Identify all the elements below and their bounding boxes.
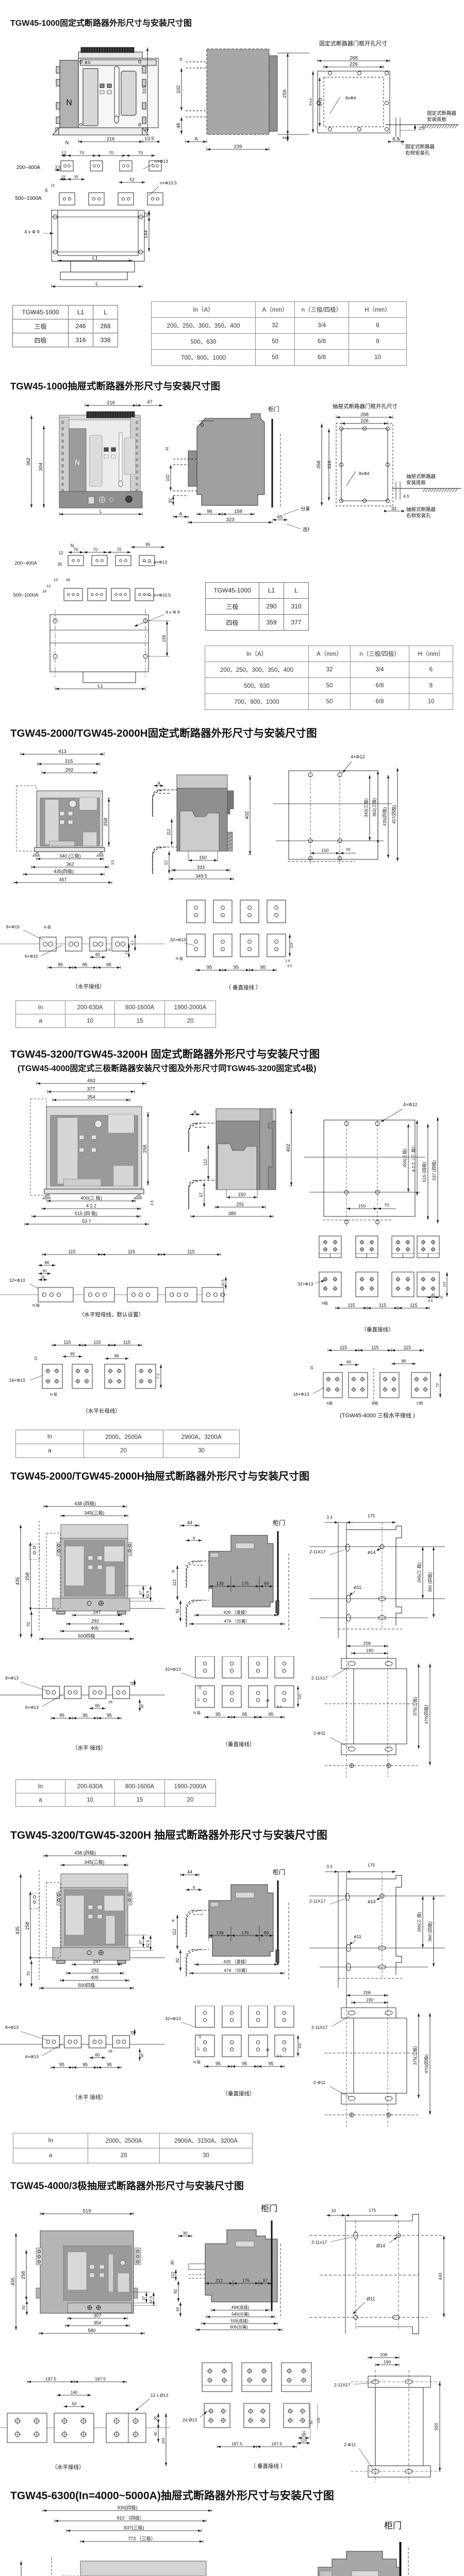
svg-text:150: 150: [321, 848, 328, 853]
svg-text:3.5: 3.5: [55, 165, 61, 170]
svg-text:43: 43: [175, 2307, 180, 2311]
svg-text:A: A: [194, 137, 198, 142]
svg-text:175: 175: [241, 1581, 248, 1586]
svg-text:175: 175: [368, 1862, 375, 1868]
svg-text:37: 37: [138, 1940, 143, 1944]
svg-text:40: 40: [70, 1352, 75, 1357]
svg-text:200~400A: 200~400A: [16, 165, 40, 171]
svg-text:32×Φ13: 32×Φ13: [165, 1667, 181, 1672]
svg-text:95: 95: [260, 965, 266, 971]
svg-text:8xΦ4: 8xΦ4: [359, 471, 370, 476]
svg-text:15: 15: [61, 175, 65, 179]
svg-text:70: 70: [22, 2306, 26, 2310]
svg-text:32: 32: [391, 506, 397, 512]
svg-text:435: 435: [10, 2278, 16, 2286]
svg-text:515 (四极): 515 (四极): [422, 1162, 427, 1182]
svg-text:175: 175: [241, 1930, 248, 1936]
svg-text:212: 212: [216, 2278, 223, 2283]
svg-text:377: 377: [87, 1087, 95, 1092]
svg-text:110: 110: [290, 942, 294, 948]
svg-text:50: 50: [42, 1269, 46, 1274]
svg-text:354: 354: [93, 2320, 101, 2326]
svg-text:40: 40: [431, 1294, 435, 1297]
svg-text:3 3: 3 3: [326, 1515, 333, 1520]
svg-text:A: A: [179, 512, 183, 517]
svg-text:99: 99: [264, 1581, 269, 1586]
svg-text:97: 97: [263, 2278, 268, 2283]
svg-text:7: 7: [220, 1294, 222, 1297]
svg-text:30: 30: [141, 1704, 144, 1708]
svg-text:86: 86: [114, 1354, 119, 1359]
svg-text:773 （三极）: 773 （三极）: [128, 2536, 156, 2541]
svg-text:315: 315: [65, 759, 73, 765]
svg-text:92: 92: [168, 498, 173, 503]
svg-text:102: 102: [165, 474, 170, 481]
svg-text:12: 12: [62, 151, 67, 156]
svg-text:112: 112: [171, 2272, 175, 2278]
svg-text:固定式断路器: 固定式断路器: [427, 110, 457, 116]
svg-text:95: 95: [242, 1712, 247, 1717]
svg-text:2-11X17: 2-11X17: [334, 2382, 351, 2387]
svg-text:14: 14: [130, 2031, 134, 2035]
svg-text:（水平 接线）: （水平 接线）: [72, 2094, 106, 2100]
svg-text:837(三极): 837(三极): [124, 2525, 144, 2531]
svg-text:292: 292: [91, 1968, 99, 1973]
svg-text:50: 50: [72, 2402, 77, 2406]
svg-text:435: 435: [15, 1926, 21, 1935]
svg-text:2-11X17: 2-11X17: [309, 1899, 326, 1904]
svg-text:14: 14: [130, 1682, 134, 1686]
svg-text:28: 28: [108, 2050, 112, 2054]
svg-text:158: 158: [161, 635, 167, 642]
svg-text:28: 28: [108, 1701, 112, 1704]
svg-text:910 （四极）: 910 （四极）: [117, 2515, 144, 2521]
svg-text:35: 35: [58, 562, 62, 567]
svg-text:ø11: ø11: [354, 1585, 361, 1590]
svg-text:95: 95: [242, 2061, 247, 2066]
svg-text:40: 40: [346, 1360, 351, 1365]
svg-text:B相: B相: [372, 1401, 378, 1405]
svg-text:6 0: 6 0: [287, 964, 292, 968]
svg-text:70: 70: [93, 548, 98, 552]
svg-text:(TGW45-4000 三极水平接线 ): (TGW45-4000 三极水平接线 ): [340, 1412, 415, 1419]
svg-text:n×Φ13: n×Φ13: [155, 159, 168, 164]
svg-text:139: 139: [216, 1581, 223, 1586]
svg-text:3.5: 3.5: [111, 860, 115, 865]
svg-text:抽屉式断路器门框开孔尺寸: 抽屉式断路器门框开孔尺寸: [333, 403, 397, 410]
svg-text:315: 315: [142, 86, 147, 94]
svg-text:95: 95: [82, 1713, 88, 1718]
svg-text:115: 115: [410, 1303, 417, 1308]
svg-text:70: 70: [384, 1202, 389, 1208]
svg-text:435(四极): 435(四极): [382, 807, 387, 826]
svg-text:37: 37: [138, 1591, 143, 1595]
svg-text:18: 18: [42, 589, 46, 594]
svg-text:a: a: [193, 1885, 195, 1890]
svg-text:15: 15: [440, 1296, 443, 1299]
svg-text:8xΦ4: 8xΦ4: [345, 95, 356, 100]
svg-text:（水平短母线，默认设置）: （水平短母线，默认设置）: [79, 1311, 144, 1318]
svg-text:429 （连接）: 429 （连接）: [223, 1610, 250, 1615]
svg-text:L1: L1: [92, 256, 98, 261]
svg-text:115: 115: [128, 1249, 135, 1255]
svg-text:70: 70: [26, 1971, 31, 1976]
svg-text:115: 115: [371, 1345, 378, 1350]
svg-text:95: 95: [59, 2062, 64, 2067]
svg-text:a: a: [171, 1919, 175, 1922]
svg-text:519: 519: [83, 2209, 91, 2214]
svg-text:400(三 极): 400(三 极): [80, 1195, 102, 1201]
svg-text:190: 190: [366, 1648, 373, 1653]
svg-text:95: 95: [268, 1712, 273, 1717]
svg-text:402: 402: [286, 1144, 291, 1152]
svg-text:柜门: 柜门: [268, 405, 279, 413]
svg-text:312: 312: [309, 98, 313, 106]
svg-text:32×Φ13: 32×Φ13: [297, 1281, 313, 1286]
svg-text:86: 86: [45, 1261, 49, 1265]
svg-text:30: 30: [183, 2231, 188, 2236]
svg-text:N: N: [65, 140, 69, 145]
svg-text:362(三极): 362(三极): [372, 798, 377, 817]
svg-text:12: 12: [144, 212, 148, 217]
svg-text:Ø14: Ø14: [376, 2243, 385, 2248]
svg-text:30: 30: [170, 2260, 175, 2265]
svg-text:258: 258: [103, 818, 109, 826]
svg-text:60: 60: [95, 2053, 100, 2058]
svg-text:515 (四 极): 515 (四 极): [75, 1211, 97, 1216]
svg-text:35: 35: [66, 578, 70, 582]
svg-text:354: 354: [87, 1095, 95, 1100]
svg-text:402: 402: [244, 811, 250, 820]
svg-text:605(分离): 605(分离): [230, 2325, 248, 2330]
svg-text:8×Φ13: 8×Φ13: [5, 1675, 19, 1681]
svg-text:259: 259: [282, 90, 288, 98]
svg-text:345(三极): 345(三极): [84, 1510, 104, 1516]
svg-text:115: 115: [379, 1303, 386, 1308]
svg-text:175: 175: [369, 2208, 376, 2213]
svg-text:a: a: [157, 781, 160, 786]
svg-text:95: 95: [234, 965, 239, 971]
svg-text:12 x Ø13: 12 x Ø13: [151, 2393, 169, 2398]
svg-text:安装底板: 安装底板: [427, 116, 447, 123]
svg-text:102: 102: [176, 86, 181, 94]
svg-text:4 x Φ 9: 4 x Φ 9: [24, 229, 39, 234]
svg-text:28: 28: [266, 2048, 270, 2052]
svg-text:12: 12: [59, 551, 63, 555]
svg-text:3: 3: [282, 137, 288, 139]
svg-text:6 0: 6 0: [277, 1705, 281, 1709]
svg-text:柜门: 柜门: [261, 2204, 277, 2213]
svg-text:N 极: N 极: [44, 925, 51, 929]
svg-text:208: 208: [363, 1641, 371, 1646]
svg-text:115: 115: [68, 1249, 75, 1255]
svg-text:175: 175: [368, 1513, 375, 1518]
svg-text:226: 226: [360, 418, 369, 424]
svg-text:375(三极): 375(三极): [412, 1697, 418, 1716]
svg-text:70: 70: [79, 150, 85, 156]
svg-text:12×Φ13: 12×Φ13: [9, 1278, 25, 1283]
svg-text:470(四极): 470(四极): [424, 2054, 429, 2073]
svg-text:2-Φ11: 2-Φ11: [344, 2442, 356, 2447]
svg-text:247: 247: [93, 1610, 101, 1615]
svg-text:H: H: [179, 58, 184, 61]
svg-text:60: 60: [95, 953, 100, 957]
svg-text:440: 440: [438, 2273, 443, 2280]
svg-text:413: 413: [58, 749, 67, 755]
svg-text:70: 70: [26, 1622, 31, 1626]
svg-text:265(三 极): 265(三 极): [417, 1563, 422, 1583]
svg-text:2.5: 2.5: [419, 126, 425, 131]
svg-text:a: a: [171, 1570, 175, 1572]
svg-text:115: 115: [63, 1340, 71, 1345]
svg-text:115: 115: [299, 1693, 302, 1699]
svg-text:44: 44: [187, 1520, 192, 1526]
svg-text:固定式断路器: 固定式断路器: [405, 144, 435, 150]
svg-text:86: 86: [402, 1359, 406, 1364]
svg-text:6×Φ13: 6×Φ13: [25, 1705, 39, 1710]
svg-text:6×Φ15: 6×Φ15: [25, 954, 38, 959]
svg-text:10: 10: [198, 1685, 202, 1689]
svg-text:537 (四极): 537 (四极): [432, 1160, 437, 1180]
svg-text:70: 70: [345, 847, 351, 852]
svg-text:268: 268: [360, 412, 369, 418]
svg-text:52: 52: [129, 177, 135, 182]
svg-text:n×Φ13: n×Φ13: [154, 560, 167, 565]
svg-text:25: 25: [41, 1276, 45, 1280]
svg-text:270: 270: [318, 98, 323, 106]
svg-text:247: 247: [93, 1959, 101, 1964]
svg-text:115: 115: [123, 1340, 130, 1345]
svg-text:6 0: 6 0: [277, 2055, 281, 2058]
svg-text:72: 72: [435, 1383, 440, 1387]
svg-text:7 2: 7 2: [156, 1374, 160, 1379]
svg-text:20: 20: [154, 2416, 158, 2420]
svg-text:70: 70: [117, 548, 122, 552]
svg-text:32×Φ13: 32×Φ13: [170, 937, 186, 942]
svg-text:292: 292: [65, 768, 74, 773]
svg-text:右侧安装孔: 右侧安装孔: [405, 150, 430, 156]
svg-text:474 （分离）: 474 （分离）: [224, 1619, 250, 1624]
svg-text:92: 92: [175, 1608, 180, 1613]
svg-text:44: 44: [187, 1870, 192, 1875]
svg-text:N极: N极: [322, 1301, 328, 1306]
svg-text:494(连接): 494(连接): [231, 2305, 250, 2310]
svg-text:48: 48: [176, 123, 181, 129]
svg-text:323: 323: [226, 517, 235, 523]
svg-text:95: 95: [82, 962, 87, 968]
svg-text:4 x Φ 9: 4 x Φ 9: [165, 609, 180, 615]
svg-text:112: 112: [167, 828, 171, 835]
svg-text:333: 333: [197, 865, 205, 870]
svg-text:4 2 2: 4 2 2: [86, 1204, 96, 1209]
svg-text:柜门: 柜门: [384, 2521, 402, 2531]
svg-text:197.5: 197.5: [45, 2377, 57, 2382]
svg-text:H: H: [165, 447, 170, 450]
svg-text:112: 112: [203, 1159, 208, 1165]
svg-text:362: 362: [26, 457, 31, 466]
svg-text:分离位置: 分离位置: [301, 506, 309, 512]
svg-text:340(三极): 340(三极): [363, 798, 369, 817]
svg-text:30: 30: [141, 2054, 144, 2058]
svg-text:150: 150: [238, 1192, 245, 1197]
svg-text:16×Φ13: 16×Φ13: [9, 1378, 25, 1383]
svg-text:930(四极): 930(四极): [117, 2505, 137, 2511]
svg-text:15: 15: [303, 2431, 306, 2435]
svg-text:57: 57: [199, 1192, 204, 1197]
svg-text:37: 37: [141, 2296, 146, 2300]
svg-text:405: 405: [91, 1626, 98, 1631]
svg-text:99: 99: [264, 1930, 269, 1936]
svg-text:n×Φ10.5: n×Φ10.5: [160, 180, 177, 185]
svg-text:158: 158: [234, 509, 242, 515]
svg-text:17: 17: [197, 1698, 201, 1702]
svg-text:57: 57: [164, 860, 169, 865]
svg-text:197.5: 197.5: [95, 2377, 106, 2382]
svg-text:N: N: [75, 459, 79, 466]
svg-text:（水平接线）: （水平接线）: [73, 983, 105, 990]
svg-text:（垂直接线）: （垂直接线）: [223, 2090, 255, 2097]
svg-text:239: 239: [234, 144, 242, 150]
svg-text:12: 12: [46, 584, 51, 588]
svg-text:435: 435: [15, 1577, 21, 1585]
svg-text:360 (四极): 360 (四极): [427, 1572, 433, 1592]
svg-text:265(三 极): 265(三 极): [417, 1912, 422, 1932]
svg-text:258: 258: [21, 2271, 26, 2279]
svg-text:358: 358: [316, 461, 322, 469]
svg-text:抽屉式断路器: 抽屉式断路器: [406, 473, 436, 480]
svg-text:400(三极): 400(三极): [402, 1148, 407, 1167]
svg-text:12: 12: [51, 184, 55, 188]
svg-text:32.5: 32.5: [222, 1279, 225, 1286]
svg-text:10: 10: [198, 2035, 202, 2039]
svg-text:4×Φ12: 4×Φ12: [403, 1102, 417, 1107]
svg-text:17: 17: [197, 2047, 201, 2051]
svg-text:95: 95: [106, 962, 111, 968]
svg-text:258: 258: [25, 1572, 30, 1581]
svg-text:60: 60: [95, 1704, 100, 1708]
svg-text:208: 208: [363, 1990, 371, 1995]
svg-text:柜门: 柜门: [273, 1868, 285, 1876]
svg-text:120: 120: [301, 2438, 307, 2443]
svg-text:375(三极): 375(三极): [412, 2046, 418, 2065]
svg-text:70: 70: [74, 548, 78, 552]
svg-text:53 7: 53 7: [82, 1219, 91, 1224]
svg-text:92: 92: [175, 1958, 180, 1962]
svg-text:95: 95: [216, 1712, 221, 1717]
svg-text:ø14: ø14: [368, 1550, 376, 1555]
svg-text:115: 115: [340, 1345, 347, 1350]
svg-text:340 (三极): 340 (三极): [59, 853, 81, 859]
svg-text:112: 112: [172, 1579, 177, 1586]
svg-text:216: 216: [107, 400, 115, 406]
svg-text:559(连接): 559(连接): [230, 2318, 248, 2324]
svg-text:N 极: N 极: [32, 1303, 40, 1308]
svg-text:ø11: ø11: [354, 1934, 361, 1939]
svg-text:258: 258: [25, 1922, 30, 1930]
svg-text:112: 112: [172, 1928, 177, 1935]
svg-text:固定式断路器门框开孔尺寸: 固定式断路器门框开孔尺寸: [319, 40, 387, 47]
svg-text:（ 垂直接线 ）: （ 垂直接线 ）: [226, 984, 261, 991]
svg-text:362: 362: [66, 862, 74, 867]
svg-text:右侧安装孔: 右侧安装孔: [406, 513, 431, 519]
svg-text:24 Ø13: 24 Ø13: [183, 2417, 197, 2422]
svg-text:8 6: 8 6: [428, 1299, 433, 1303]
svg-text:4 2: 4 2: [131, 940, 135, 945]
svg-text:L1: L1: [97, 684, 103, 689]
svg-text:N 极: N 极: [176, 956, 183, 961]
svg-text:（水平 接线）: （水平 接线）: [72, 1744, 106, 1751]
svg-text:2-11x17: 2-11x17: [311, 2240, 327, 2245]
svg-text:500~1000A: 500~1000A: [15, 196, 42, 201]
svg-text:2 8: 2 8: [285, 959, 290, 963]
svg-text:438 (四极): 438 (四极): [74, 1501, 96, 1506]
svg-text:15: 15: [310, 1366, 314, 1370]
svg-text:197.5: 197.5: [231, 2442, 243, 2447]
svg-text:4 2 2（三 极）: 4 2 2（三 极）: [411, 1144, 416, 1172]
svg-text:95: 95: [58, 962, 63, 968]
svg-text:405: 405: [91, 1975, 98, 1980]
svg-text:175: 175: [242, 2278, 250, 2283]
svg-text:18: 18: [45, 189, 48, 193]
svg-text:144: 144: [143, 230, 149, 239]
svg-text:349.5: 349.5: [195, 874, 207, 879]
svg-text:2 8: 2 8: [106, 948, 110, 952]
svg-text:140: 140: [71, 2391, 78, 2395]
svg-text:32×Φ13: 32×Φ13: [165, 2016, 181, 2021]
svg-text:安装底板: 安装底板: [406, 480, 426, 486]
svg-text:92: 92: [173, 2289, 178, 2294]
svg-text:4.5: 4.5: [403, 494, 409, 499]
svg-text:470(四极): 470(四极): [424, 1705, 429, 1724]
svg-text:360 (四极): 360 (四极): [427, 1921, 433, 1941]
svg-text:258: 258: [142, 1145, 148, 1153]
svg-text:（ 垂直接线 ）: （ 垂直接线 ）: [251, 2463, 286, 2469]
svg-text:115: 115: [404, 1345, 411, 1350]
svg-text:柜门: 柜门: [273, 1519, 285, 1527]
svg-text:95: 95: [216, 2061, 221, 2066]
svg-text:N 极: N 极: [193, 2060, 201, 2064]
svg-text:L: L: [95, 281, 98, 287]
svg-text:15: 15: [54, 578, 58, 582]
svg-text:复位: 复位: [85, 61, 91, 65]
svg-text:Ø11: Ø11: [367, 2296, 375, 2301]
svg-text:307: 307: [93, 2313, 101, 2318]
svg-text:115: 115: [187, 1249, 194, 1255]
svg-text:95: 95: [107, 2062, 112, 2067]
svg-text:457(四极): 457(四极): [391, 805, 396, 824]
svg-text:42.5: 42.5: [145, 1591, 150, 1599]
svg-text:2-11X17: 2-11X17: [309, 1549, 326, 1554]
svg-text:389: 389: [228, 1211, 236, 1216]
svg-text:292: 292: [91, 1619, 99, 1624]
svg-text:580: 580: [88, 2328, 95, 2333]
svg-text:13.5: 13.5: [144, 136, 154, 142]
svg-text:15: 15: [35, 1357, 38, 1361]
svg-text:8×Φ15: 8×Φ15: [6, 924, 20, 929]
svg-text:438 (四极): 438 (四极): [74, 1850, 96, 1856]
svg-text:115: 115: [443, 1281, 446, 1287]
svg-text:216: 216: [107, 137, 115, 142]
svg-text:（垂直接线）: （垂直接线）: [223, 1741, 255, 1748]
svg-text:n×Φ10.5: n×Φ10.5: [154, 592, 171, 598]
svg-text:226: 226: [350, 62, 358, 67]
svg-text:65: 65: [277, 515, 283, 520]
svg-text:139: 139: [216, 1930, 223, 1936]
svg-text:304: 304: [38, 463, 44, 471]
svg-text:197.5: 197.5: [271, 2442, 283, 2447]
svg-text:33: 33: [332, 2209, 336, 2213]
svg-text:A相: A相: [326, 1401, 333, 1405]
